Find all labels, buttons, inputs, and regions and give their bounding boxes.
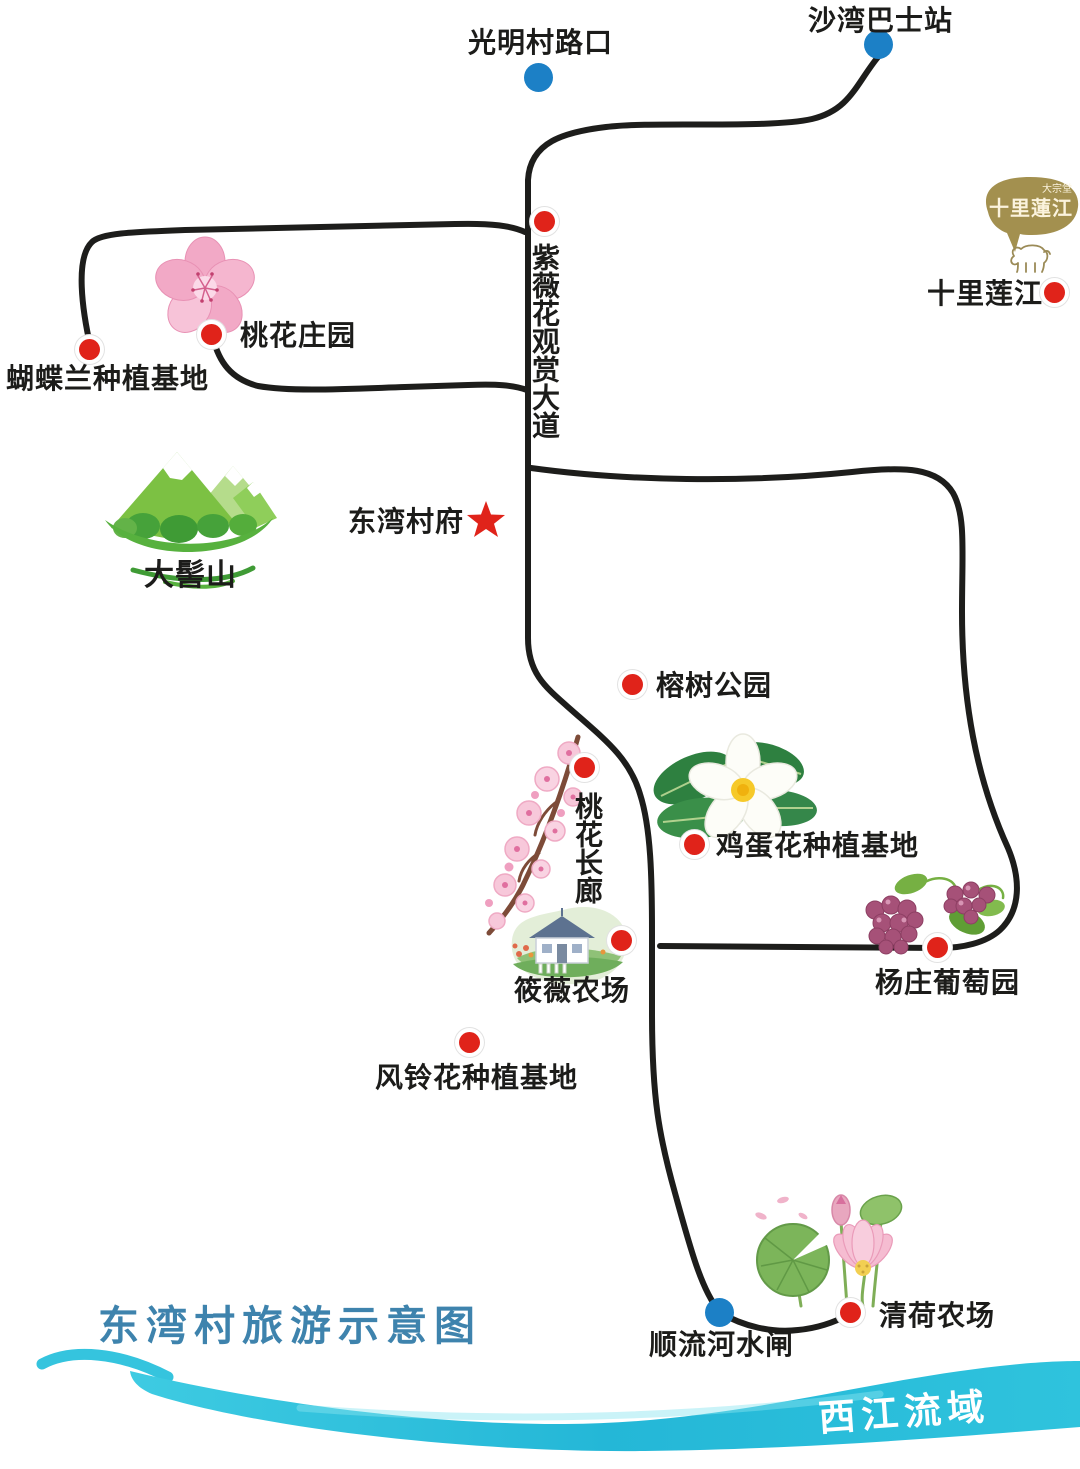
marker-hudielan-base — [79, 339, 100, 360]
marker-shunliu-sluice — [705, 1298, 734, 1327]
marker-ziwei-avenue — [534, 211, 555, 232]
label-ziwei-avenue: 紫薇花观赏大道 — [530, 243, 558, 439]
label-shawan-bus: 沙湾巴士站 — [808, 6, 953, 35]
tourist-map: 大宗堂 十里蓮江 沙湾巴士站 光明村路口 紫薇花观赏大道 十里莲江 蝴蝶兰种植基… — [0, 0, 1080, 1469]
village-hall-star-icon — [467, 501, 505, 537]
marker-guangming — [524, 63, 553, 92]
label-qinghe-farm: 清荷农场 — [879, 1301, 995, 1330]
label-daji-mountain: 大髻山 — [144, 560, 237, 592]
label-rongshu-park: 榕树公园 — [656, 671, 772, 700]
label-dongwan-hall: 东湾村府 — [348, 507, 464, 536]
shili-lianjiang-logo: 大宗堂 十里蓮江 — [986, 177, 1078, 272]
label-taohua-manor: 桃花庄园 — [240, 321, 356, 350]
label-taohua-corridor: 桃花长廊 — [573, 792, 601, 904]
label-jidanhua-base: 鸡蛋花种植基地 — [716, 831, 919, 860]
marker-taohua-manor — [201, 324, 222, 345]
label-shili-lianjiang: 十里莲江 — [927, 279, 1043, 308]
marker-fenglinghua-base — [459, 1032, 480, 1053]
lotus-icon — [754, 1191, 905, 1306]
frangipani-flower-icon — [646, 734, 818, 845]
label-hudielan-base: 蝴蝶兰种植基地 — [6, 364, 209, 393]
marker-xiaowei-farm — [611, 930, 632, 951]
marker-jidanhua-base — [684, 834, 705, 855]
road-east-loop — [531, 468, 1017, 948]
map-title: 东湾村旅游示意图 — [98, 1292, 482, 1352]
logo-sub-text: 大宗堂 — [1042, 182, 1072, 195]
marker-shili-lianjiang — [1044, 282, 1065, 303]
marker-taohua-corridor — [574, 757, 595, 778]
farmhouse-icon — [512, 907, 627, 984]
label-xiaowei-farm: 筱薇农场 — [514, 976, 630, 1005]
peach-branch-icon — [485, 737, 586, 933]
marker-rongshu-park — [622, 674, 643, 695]
marker-yangzhuang-vineyard — [927, 937, 948, 958]
marker-qinghe-farm — [840, 1302, 861, 1323]
label-fenglinghua-base: 风铃花种植基地 — [375, 1063, 578, 1092]
label-shunliu-sluice: 顺流河水闸 — [649, 1330, 794, 1359]
cow-icon — [1011, 245, 1050, 272]
label-yangzhuang-vineyard: 杨庄葡萄园 — [875, 968, 1020, 997]
label-guangming: 光明村路口 — [468, 28, 613, 57]
logo-brand-text: 十里蓮江 — [989, 196, 1073, 220]
road-to-qinghe-farm — [719, 1312, 850, 1331]
